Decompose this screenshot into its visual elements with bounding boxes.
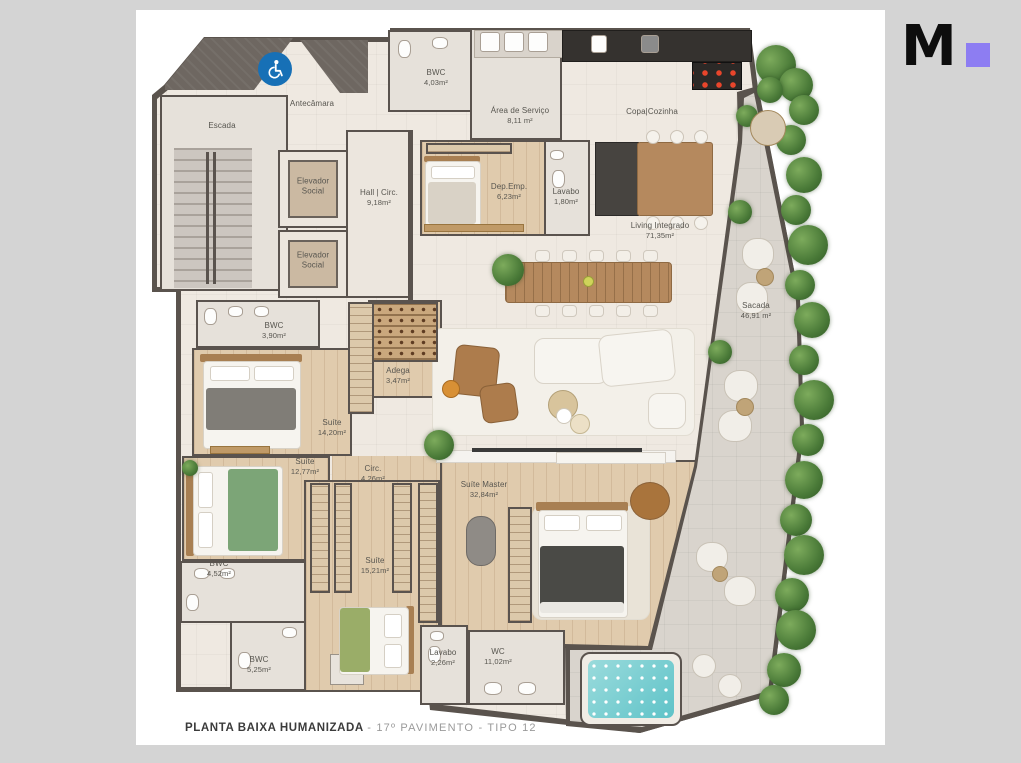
room-label-bwc-525: BWC5,25m² <box>247 655 271 675</box>
kitchen-island-table <box>637 142 713 216</box>
caption-title: PLANTA BAIXA HUMANIZADA <box>185 722 363 734</box>
plant <box>785 461 823 499</box>
pouf <box>718 674 742 698</box>
room-label-lavabo-180: Lavabo1,80m² <box>553 187 580 207</box>
plant <box>785 270 815 300</box>
room-wc-1102 <box>468 630 565 705</box>
plant-balcony <box>708 340 732 364</box>
page: { "logo": {"letter": "M", "accent_color"… <box>0 0 1021 763</box>
wall-hall-living <box>408 130 413 300</box>
balcony-chair <box>724 576 756 606</box>
wardrobe-master <box>508 507 532 623</box>
wheelchair-glyph <box>264 58 286 80</box>
room-label-suite-master: Suíte Master32,84m² <box>461 480 508 500</box>
room-label-bwc-403: BWC4,03m² <box>424 68 448 88</box>
sink <box>550 150 564 160</box>
plant <box>776 610 816 650</box>
jacuzzi-water <box>588 660 674 718</box>
room-label-bwc-390: BWC3,90m² <box>262 321 286 341</box>
floorplan: Escada Antecâmara Elevador Social Elevad… <box>136 10 885 745</box>
stool <box>646 130 660 144</box>
wardrobe <box>348 302 374 414</box>
room-label-area-servico: Área de Serviço8,11 m² <box>491 106 549 126</box>
plan-caption: PLANTA BAIXA HUMANIZADA - 17º PAVIMENTO … <box>185 722 537 734</box>
room-label-escada: Escada <box>208 121 235 131</box>
dining-chair <box>535 305 550 317</box>
plant-balcony <box>728 200 752 224</box>
bed-suite-1521 <box>338 606 414 674</box>
wardrobe <box>392 483 412 593</box>
leather-armchair <box>479 382 520 425</box>
plant <box>792 424 824 456</box>
bed-master <box>536 502 628 618</box>
dining-chair <box>535 250 550 262</box>
sink <box>518 682 536 695</box>
plant <box>789 95 819 125</box>
dining-chair <box>562 305 577 317</box>
dining-chair <box>616 305 631 317</box>
wardrobe <box>418 483 438 623</box>
plant <box>757 77 783 103</box>
armchair <box>648 393 686 429</box>
sink <box>484 682 502 695</box>
stool <box>694 216 708 230</box>
washer <box>528 32 548 52</box>
kitchen-island-dark <box>595 142 639 216</box>
caption-subtitle: - 17º PAVIMENTO - TIPO 12 <box>367 722 537 734</box>
closet-dep-emp <box>426 143 512 154</box>
sink <box>254 306 269 317</box>
pouf <box>692 654 716 678</box>
washer <box>504 32 524 52</box>
pouf <box>442 380 460 398</box>
sink <box>282 627 297 638</box>
room-label-antecamara: Antecâmara <box>290 99 334 109</box>
plant <box>775 578 809 612</box>
balcony-chair <box>724 370 758 402</box>
stool <box>670 130 684 144</box>
wardrobe <box>334 483 352 593</box>
plant <box>794 380 834 420</box>
bench <box>210 446 270 454</box>
toilet <box>204 308 217 325</box>
wardrobe <box>310 483 330 593</box>
room-hall <box>346 130 412 298</box>
balcony-table <box>750 110 786 146</box>
plant <box>789 345 819 375</box>
room-label-dep-emp: Dep.Emp.6,23m² <box>491 182 527 202</box>
balcony-side-table <box>736 398 754 416</box>
cooktop <box>692 62 742 90</box>
dining-chair <box>643 250 658 262</box>
coffee-table <box>570 414 590 434</box>
plant-living <box>424 430 454 460</box>
room-label-sacada: Sacada46,91 m² <box>741 301 771 321</box>
room-label-suite-1420: Suíte14,20m² <box>318 418 346 438</box>
room-label-lavabo-226: Lavabo2,26m² <box>430 648 457 668</box>
dining-chair <box>589 250 604 262</box>
room-label-hall: Hall | Circ.9,18m² <box>360 188 398 208</box>
kitchen-sink <box>591 35 607 53</box>
balcony-chair <box>742 238 774 270</box>
room-label-suite-1521: Suíte15,21m² <box>361 556 389 576</box>
balcony-side-table <box>756 268 774 286</box>
bed-suite-1420 <box>200 354 302 450</box>
brand-logo-m: M <box>901 14 954 79</box>
room-label-wc: WC11,02m² <box>484 647 512 667</box>
stair-rail <box>206 152 216 284</box>
sink <box>228 306 243 317</box>
bed-suite-1277 <box>186 464 284 556</box>
plant <box>786 157 822 193</box>
dining-chair <box>589 305 604 317</box>
plant <box>767 653 801 687</box>
stool <box>694 130 708 144</box>
adega-shelves <box>372 302 438 362</box>
dining-centerpiece <box>583 276 594 287</box>
toilet <box>552 170 565 188</box>
plant <box>788 225 828 265</box>
plant <box>781 195 811 225</box>
floorplan-card: Escada Antecâmara Elevador Social Elevad… <box>136 10 885 745</box>
plant-dining <box>492 254 524 286</box>
toilet <box>186 594 199 611</box>
jacuzzi <box>580 652 682 726</box>
balcony-side-table <box>712 566 728 582</box>
room-label-adega: Adega3,47m² <box>386 366 410 386</box>
room-label-suite-1277: Suíte12,77m² <box>291 457 319 477</box>
bench <box>424 224 524 232</box>
plant-suite <box>182 460 198 476</box>
leather-lounge-chair <box>630 482 670 520</box>
oven <box>641 35 659 53</box>
room-label-elevador-2: Elevador Social <box>291 251 335 272</box>
plant <box>759 685 789 715</box>
dining-chair <box>643 305 658 317</box>
room-label-circ: Circ.4,26m² <box>361 464 385 484</box>
sink <box>430 631 444 641</box>
plant <box>780 504 812 536</box>
sofa <box>534 338 608 384</box>
washer <box>480 32 500 52</box>
room-label-copa: Copa|Cozinha <box>626 107 678 117</box>
sofa <box>597 328 676 387</box>
dining-chair <box>562 250 577 262</box>
master-console <box>556 452 666 464</box>
sink <box>432 37 448 49</box>
room-label-elevador-1: Elevador Social <box>291 177 335 198</box>
room-label-bwc-452: BWC4,52m² <box>207 559 231 579</box>
plant <box>784 535 824 575</box>
brand-logo-square <box>966 43 990 67</box>
coffee-table <box>556 408 572 424</box>
ottoman <box>466 516 496 566</box>
plant <box>794 302 830 338</box>
toilet <box>398 40 411 58</box>
bed-dep-emp <box>424 156 480 228</box>
wheelchair-accessibility-icon <box>258 52 292 86</box>
dining-chair <box>616 250 631 262</box>
room-label-living: Living Integrado71,35m² <box>631 221 690 241</box>
